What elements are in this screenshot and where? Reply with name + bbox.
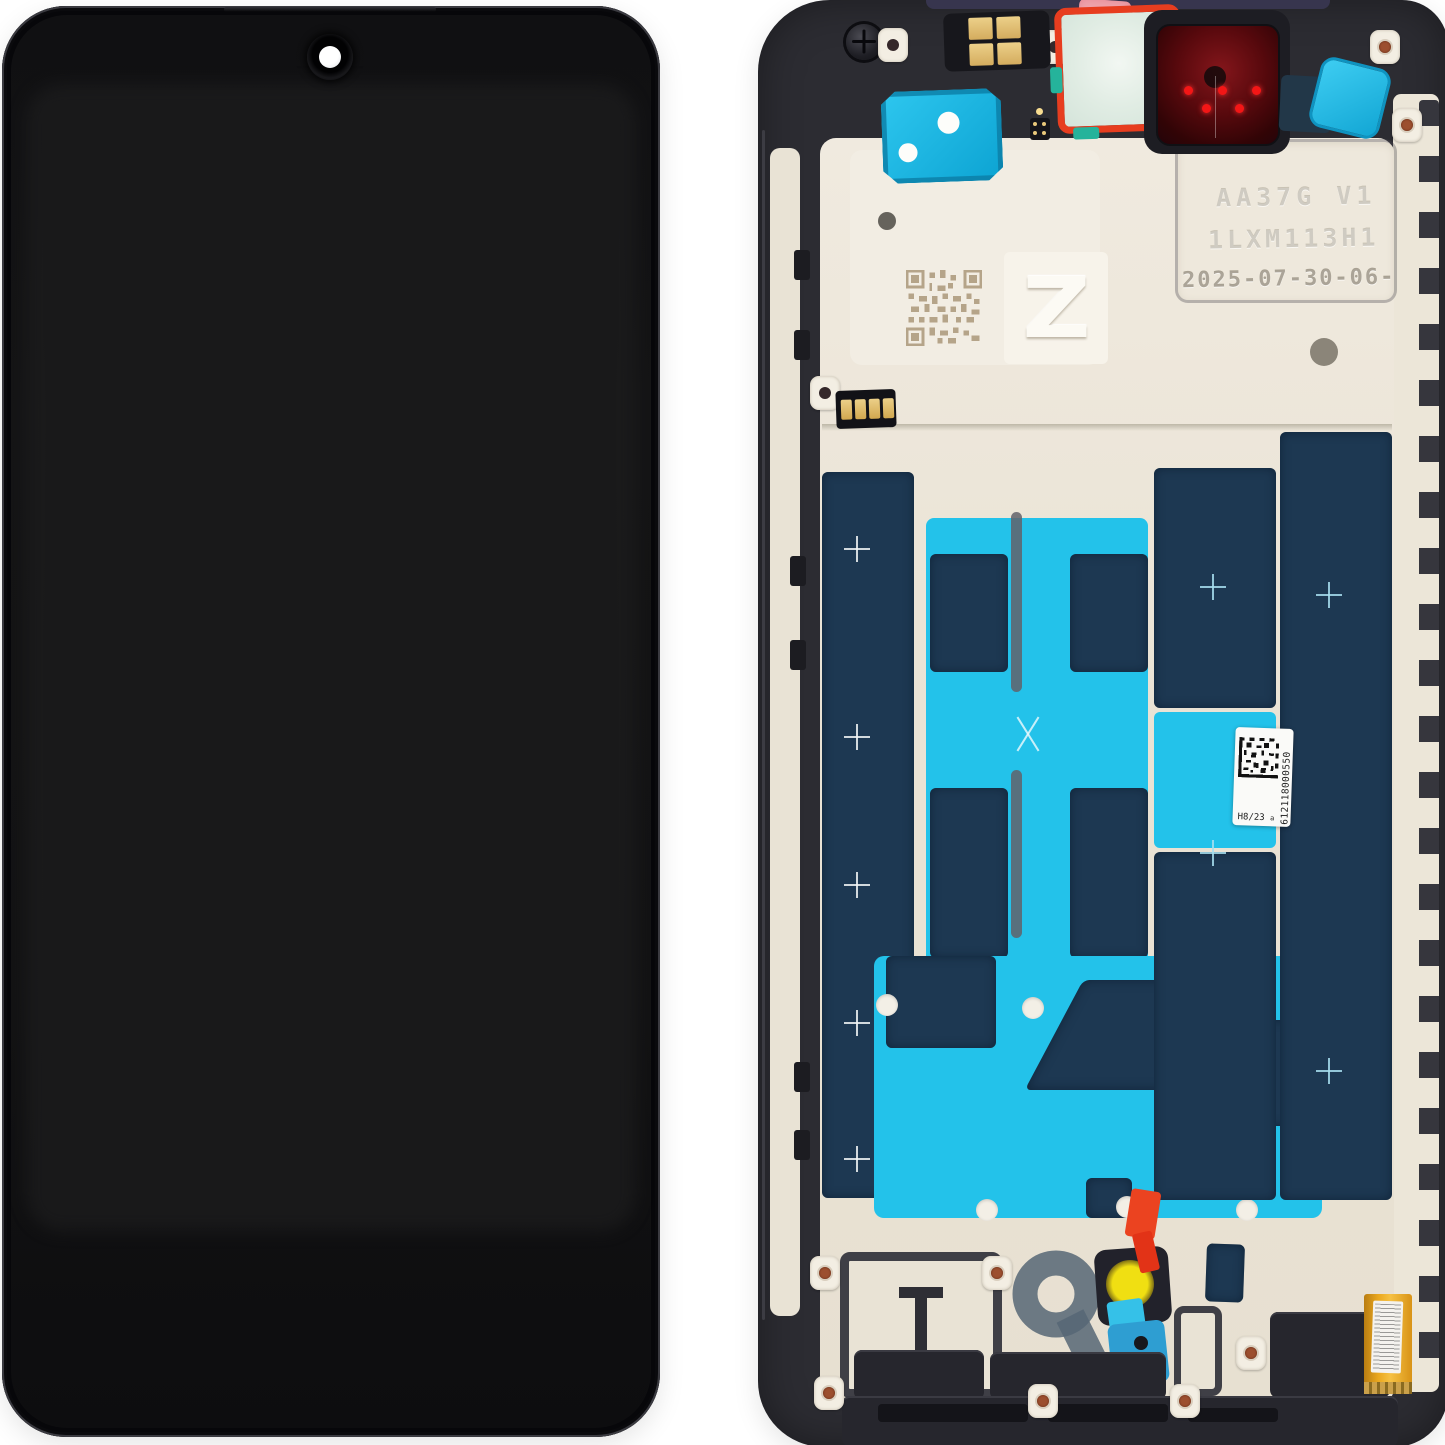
label-rev: a <box>1270 814 1274 822</box>
sticker-hole <box>898 143 918 163</box>
speaker-module-left <box>854 1350 984 1400</box>
gold-contact-pad <box>883 398 895 418</box>
adhesive-navy-poly <box>886 956 996 1048</box>
bolt-dot <box>1134 1336 1148 1350</box>
screw-boss <box>982 1256 1012 1290</box>
left-edge-highlight <box>762 130 765 1320</box>
gold-contact-pad <box>968 17 993 40</box>
alignment-cross-cyan <box>1314 580 1344 610</box>
etched-date-code: 2025-07-30-06-228 <box>1182 264 1394 294</box>
adhesive-navy-block <box>930 554 1008 672</box>
frame-tab <box>790 640 806 670</box>
etched-line-1: AA37G V1 <box>1216 181 1377 213</box>
gold-contact-pad <box>969 43 994 66</box>
phone-back-view: Z AA37G V1 1LXM113H1 2025-07-30-06-228 <box>758 0 1445 1445</box>
bottom-speaker-band <box>842 1396 1398 1445</box>
plate-hole <box>876 994 898 1016</box>
frame-tab <box>794 1062 810 1092</box>
earpiece-slit <box>224 7 436 12</box>
alignment-cross-cyan <box>1198 572 1228 602</box>
screw-boss <box>1392 108 1422 142</box>
led-dot <box>1033 131 1037 135</box>
datamatrix-code <box>1238 737 1279 778</box>
screw-boss <box>1370 30 1400 64</box>
plate-dot-large <box>1310 338 1338 366</box>
led-dot <box>1033 122 1037 126</box>
led-dot <box>1042 131 1046 135</box>
plate-letter: Z <box>1022 259 1090 357</box>
product-photo: Z AA37G V1 1LXM113H1 2025-07-30-06-228 <box>0 0 1445 1445</box>
screw-boss <box>1236 1336 1266 1370</box>
phone-front-view <box>2 6 660 1437</box>
screw-boss <box>1028 1384 1058 1418</box>
screw-boss <box>878 28 908 62</box>
alignment-cross-cyan <box>1198 838 1228 868</box>
red-led-dot <box>1235 104 1244 113</box>
punch-hole-camera-icon <box>319 46 341 68</box>
alignment-cross <box>842 1008 872 1038</box>
sticker-hole <box>937 111 960 134</box>
plate-hole <box>1236 1199 1258 1221</box>
gold-connector-strip <box>835 389 896 429</box>
adhesive-navy-block <box>1070 554 1148 672</box>
center-pin-slot <box>1011 770 1022 938</box>
bottom-right-plate <box>1174 1306 1222 1396</box>
speaker-slot <box>878 1404 1028 1422</box>
etched-text-plate: AA37G V1 1LXM113H1 2025-07-30-06-228 <box>1178 142 1394 300</box>
led-dot <box>1042 122 1046 126</box>
navy-patch-small <box>1205 1243 1245 1302</box>
gold-contact-pad <box>997 42 1022 65</box>
adhesive-navy-block <box>1070 788 1148 958</box>
speaker-slot <box>1188 1408 1278 1422</box>
etched-line-2: 1LXM113H1 <box>1208 223 1380 255</box>
adhesive-strip-right-lower <box>1154 852 1276 1200</box>
plate-dot <box>878 212 896 230</box>
gold-contact-pad <box>869 399 881 419</box>
glass-reflection <box>1215 76 1216 138</box>
alignment-cross <box>842 534 872 564</box>
teal-accent <box>1050 67 1063 93</box>
alignment-cross <box>842 722 872 752</box>
frame-tab <box>790 556 806 586</box>
alignment-cross-cyan <box>1314 1056 1344 1086</box>
camera-window-glass <box>1156 24 1280 146</box>
qr-code <box>906 270 982 346</box>
red-led-dot <box>1218 86 1227 95</box>
z-plate-patch: Z <box>1004 252 1108 364</box>
teal-accent <box>1073 127 1099 140</box>
screw-boss <box>1170 1384 1200 1418</box>
flex-cable-label <box>1371 1300 1403 1373</box>
label-batch: H8/23 a <box>1237 812 1274 823</box>
speaker-module-center <box>990 1352 1166 1400</box>
frame-tab <box>794 250 810 280</box>
flash-led-component <box>1030 118 1050 140</box>
right-rail-notches <box>1419 100 1439 1386</box>
gold-contact-pad <box>996 16 1021 39</box>
contact-bracket <box>943 10 1051 72</box>
screw-icon <box>846 24 882 60</box>
frame-tab <box>794 330 810 360</box>
gold-contact-pad <box>841 399 853 419</box>
alignment-cross <box>842 870 872 900</box>
flex-cable <box>1364 1294 1412 1394</box>
frame-tab <box>794 1130 810 1160</box>
display-active-area <box>26 84 636 1231</box>
red-led-dot <box>1202 104 1211 113</box>
alignment-cross <box>842 1144 872 1174</box>
service-label: 612118000550 H8/23 a <box>1232 727 1293 827</box>
center-x-mark <box>1006 712 1050 756</box>
red-led-dot <box>1184 86 1193 95</box>
center-pin-slot <box>1011 512 1022 692</box>
solder-dot <box>1036 108 1043 115</box>
speaker-slot <box>1048 1404 1168 1422</box>
adhesive-navy-block <box>930 788 1008 958</box>
plate-hole <box>1022 997 1044 1019</box>
flex-gold-contacts <box>1364 1382 1412 1394</box>
cyan-sticker-left <box>880 88 1003 184</box>
red-led-dot <box>1252 86 1261 95</box>
screw-boss <box>814 1376 844 1410</box>
gold-contact-pad <box>855 399 867 419</box>
label-batch-code: H8/23 <box>1237 812 1264 823</box>
plate-hole <box>976 1199 998 1221</box>
screw-boss <box>810 1256 840 1290</box>
flex-label-text-lines <box>1373 1304 1401 1371</box>
punch-hole-camera-ring <box>307 34 353 80</box>
deck-divider-shadow <box>822 424 1392 431</box>
